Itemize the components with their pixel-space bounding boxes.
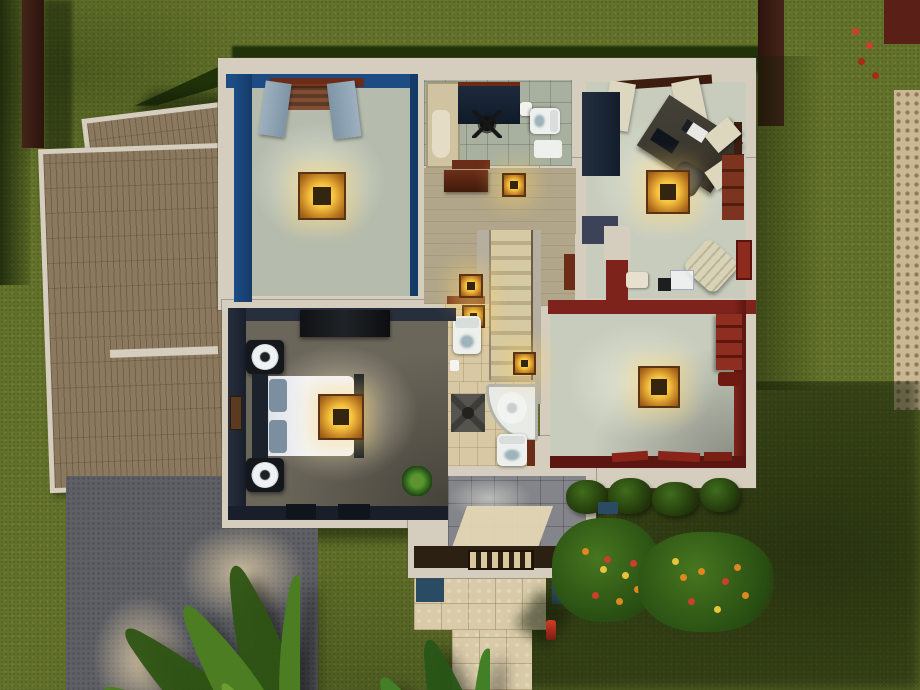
game-viewport [0, 0, 920, 690]
wall-light[interactable] [513, 352, 536, 375]
bathtub[interactable] [426, 82, 460, 168]
fence-left [22, 0, 44, 148]
hall-dresser[interactable] [444, 170, 488, 192]
wall-stub-cream [604, 226, 630, 262]
red-chair[interactable] [704, 452, 732, 461]
palm-tree[interactable] [540, 570, 920, 690]
garden-mat-blue[interactable] [598, 502, 618, 514]
palm-tree[interactable] [800, 170, 920, 500]
toilet[interactable] [530, 108, 560, 134]
shower-basin [497, 392, 527, 424]
media-dresser[interactable] [300, 310, 390, 337]
door-frame[interactable] [452, 160, 490, 169]
palm-flower-dots [852, 28, 859, 35]
bath-mat[interactable] [534, 140, 562, 158]
laptop[interactable] [680, 119, 708, 144]
desk-papers [650, 128, 679, 154]
wall-red-top [548, 300, 756, 314]
floor-fan[interactable] [472, 110, 502, 138]
wardrobe[interactable] [582, 92, 620, 176]
ceiling-light[interactable] [646, 170, 690, 214]
bathtub-basin [432, 110, 450, 158]
room-study [576, 66, 756, 306]
flower-dots [582, 548, 589, 555]
door-frame-vertical[interactable] [564, 254, 575, 290]
fence-shadow [44, 0, 72, 152]
display-box[interactable] [670, 270, 694, 290]
fan-legs [472, 110, 502, 138]
wall-light[interactable] [459, 274, 483, 298]
ceiling-light[interactable] [298, 172, 346, 220]
room-bedroom-blue [226, 66, 418, 302]
bookcase[interactable] [716, 314, 742, 370]
end-table[interactable] [626, 272, 648, 288]
palm-tree[interactable] [20, 390, 490, 690]
room-bathroom-top [416, 66, 578, 170]
reading-chair[interactable] [718, 372, 740, 386]
wall-light[interactable] [502, 173, 526, 197]
ceiling-light[interactable] [638, 366, 680, 408]
wall-blue-left [234, 74, 252, 302]
